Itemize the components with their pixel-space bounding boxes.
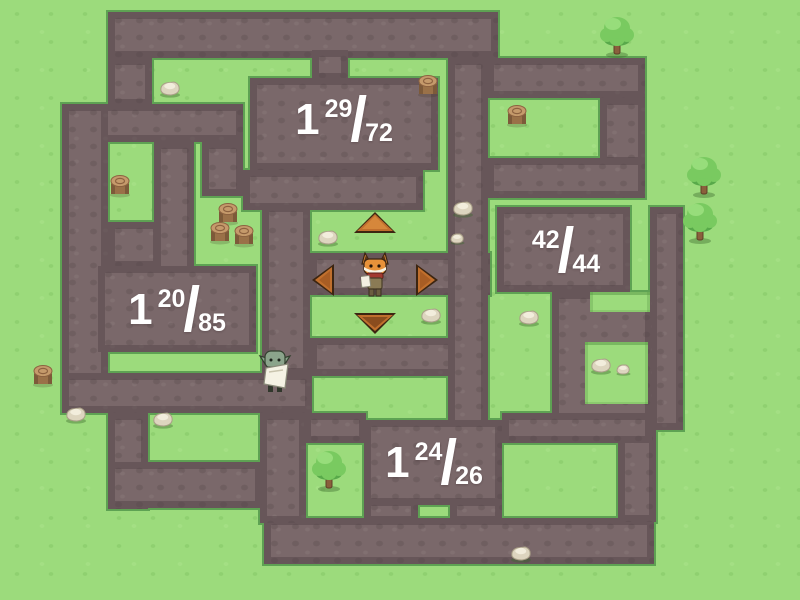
dirt-path-segment	[108, 58, 152, 106]
denominator: 85	[198, 311, 226, 336]
rock-icon	[316, 227, 340, 247]
numerator: 20	[158, 287, 186, 312]
fraction-label-top: 1 29 / 72	[295, 90, 393, 150]
fraction-label-bottom: 1 24 / 26	[385, 433, 483, 493]
dirt-path-segment	[260, 413, 306, 523]
dirt-path-segment	[243, 170, 423, 210]
denominator: 44	[572, 252, 600, 277]
tree-stump-icon	[416, 72, 440, 98]
tree-icon	[682, 200, 718, 244]
maze-paths	[0, 0, 800, 600]
tree-stump-icon	[108, 172, 132, 198]
dirt-path-segment	[154, 142, 194, 274]
rock-icon	[64, 404, 88, 424]
rock-icon	[419, 305, 443, 325]
whole-number: 1	[128, 288, 152, 332]
game-viewport: 1 29 / 72 42 / 44 1 20 / 85 1 24 / 26	[0, 0, 800, 600]
tree-stump-icon	[232, 222, 256, 248]
rock-icon	[151, 409, 175, 429]
dirt-path-segment	[312, 50, 348, 80]
dirt-path-segment	[264, 518, 654, 564]
move-up-arrow-button[interactable]	[352, 210, 398, 236]
dirt-path-segment	[487, 58, 645, 98]
rock-icon	[158, 78, 182, 98]
numerator: 42	[532, 228, 560, 253]
npc-goblin-with-letter[interactable]	[258, 348, 292, 396]
dirt-path-segment	[618, 430, 656, 522]
dirt-path-segment	[448, 58, 488, 440]
dirt-path-segment	[108, 12, 498, 58]
dirt-path-segment	[202, 142, 243, 196]
grass-pocket	[590, 292, 650, 312]
tree-icon	[686, 154, 722, 198]
small-rock-icon	[615, 362, 632, 376]
numerator: 29	[325, 97, 353, 122]
small-rock-icon	[449, 231, 466, 245]
move-left-arrow-button[interactable]	[310, 262, 336, 298]
numerator: 24	[415, 440, 443, 465]
dirt-path-segment	[502, 413, 652, 443]
rock-icon	[451, 198, 475, 218]
tree-icon	[311, 448, 347, 492]
dirt-path-segment	[600, 98, 645, 164]
denominator: 26	[455, 464, 483, 489]
fraction-label-left: 1 20 / 85	[128, 280, 226, 340]
tree-icon	[599, 14, 635, 58]
whole-number: 1	[385, 441, 409, 485]
rock-icon	[589, 355, 613, 375]
dirt-path-segment	[108, 462, 262, 508]
whole-number: 1	[295, 98, 319, 142]
player-character-fox	[361, 252, 389, 298]
tree-stump-icon	[31, 362, 55, 388]
dirt-path-segment	[108, 222, 160, 268]
fraction-label-right: 42 / 44	[532, 221, 600, 281]
dirt-path-segment	[304, 413, 366, 443]
move-down-arrow-button[interactable]	[352, 310, 398, 336]
tree-stump-icon	[208, 219, 232, 245]
dirt-path-segment	[487, 158, 645, 198]
denominator: 72	[365, 121, 393, 146]
tree-stump-icon	[505, 102, 529, 128]
rock-icon	[517, 307, 541, 327]
rock-icon	[509, 543, 533, 563]
dirt-path-segment	[650, 207, 683, 430]
move-right-arrow-button[interactable]	[414, 262, 440, 298]
